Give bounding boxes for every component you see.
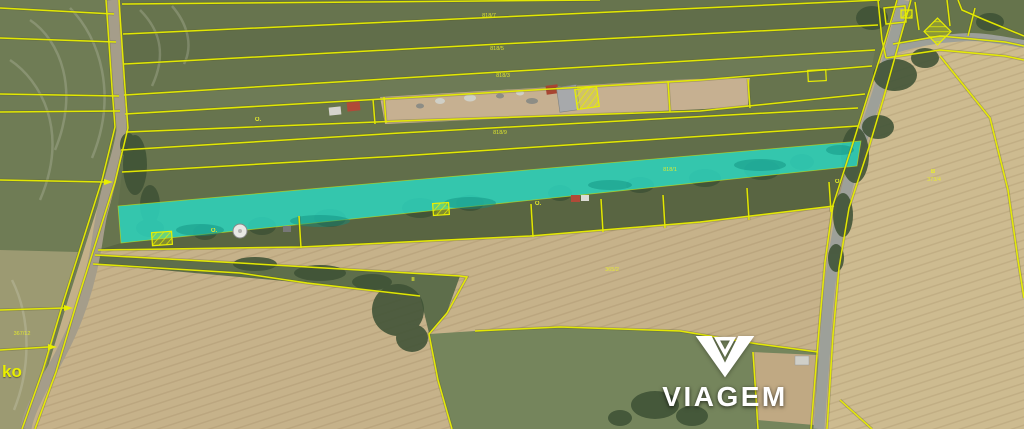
parcel-label: 373/4 — [927, 177, 941, 183]
parcel-label: 367/12 — [14, 331, 31, 337]
aerial-imagery: 818/7818/5818/3818/9818/1365/2373/4367/1… — [0, 0, 1024, 429]
parcel-label: 818/3 — [496, 73, 510, 79]
parcel-label: 365/2 — [605, 267, 619, 273]
cadastral-map[interactable]: 818/7818/5818/3818/9818/1365/2373/4367/1… — [0, 0, 1024, 429]
hatched-building-marker — [575, 87, 600, 110]
point-symbol: O. — [535, 201, 542, 207]
parcel-label: 818/9 — [493, 130, 507, 136]
parcel-label: 818/7 — [482, 13, 496, 19]
parcel-label: 818/1 — [663, 167, 677, 173]
hatched-building-marker — [901, 10, 912, 18]
hatched-building-marker — [433, 202, 450, 215]
point-symbol: O. — [835, 179, 842, 185]
point-symbol: B — [931, 169, 936, 175]
area-name-label: ko — [2, 362, 22, 382]
point-symbol: O. — [211, 228, 218, 234]
point-symbol: O. — [255, 117, 262, 123]
hatched-building-marker — [152, 231, 173, 245]
point-symbol: II — [411, 277, 415, 283]
parcel-label: 818/5 — [490, 46, 504, 52]
